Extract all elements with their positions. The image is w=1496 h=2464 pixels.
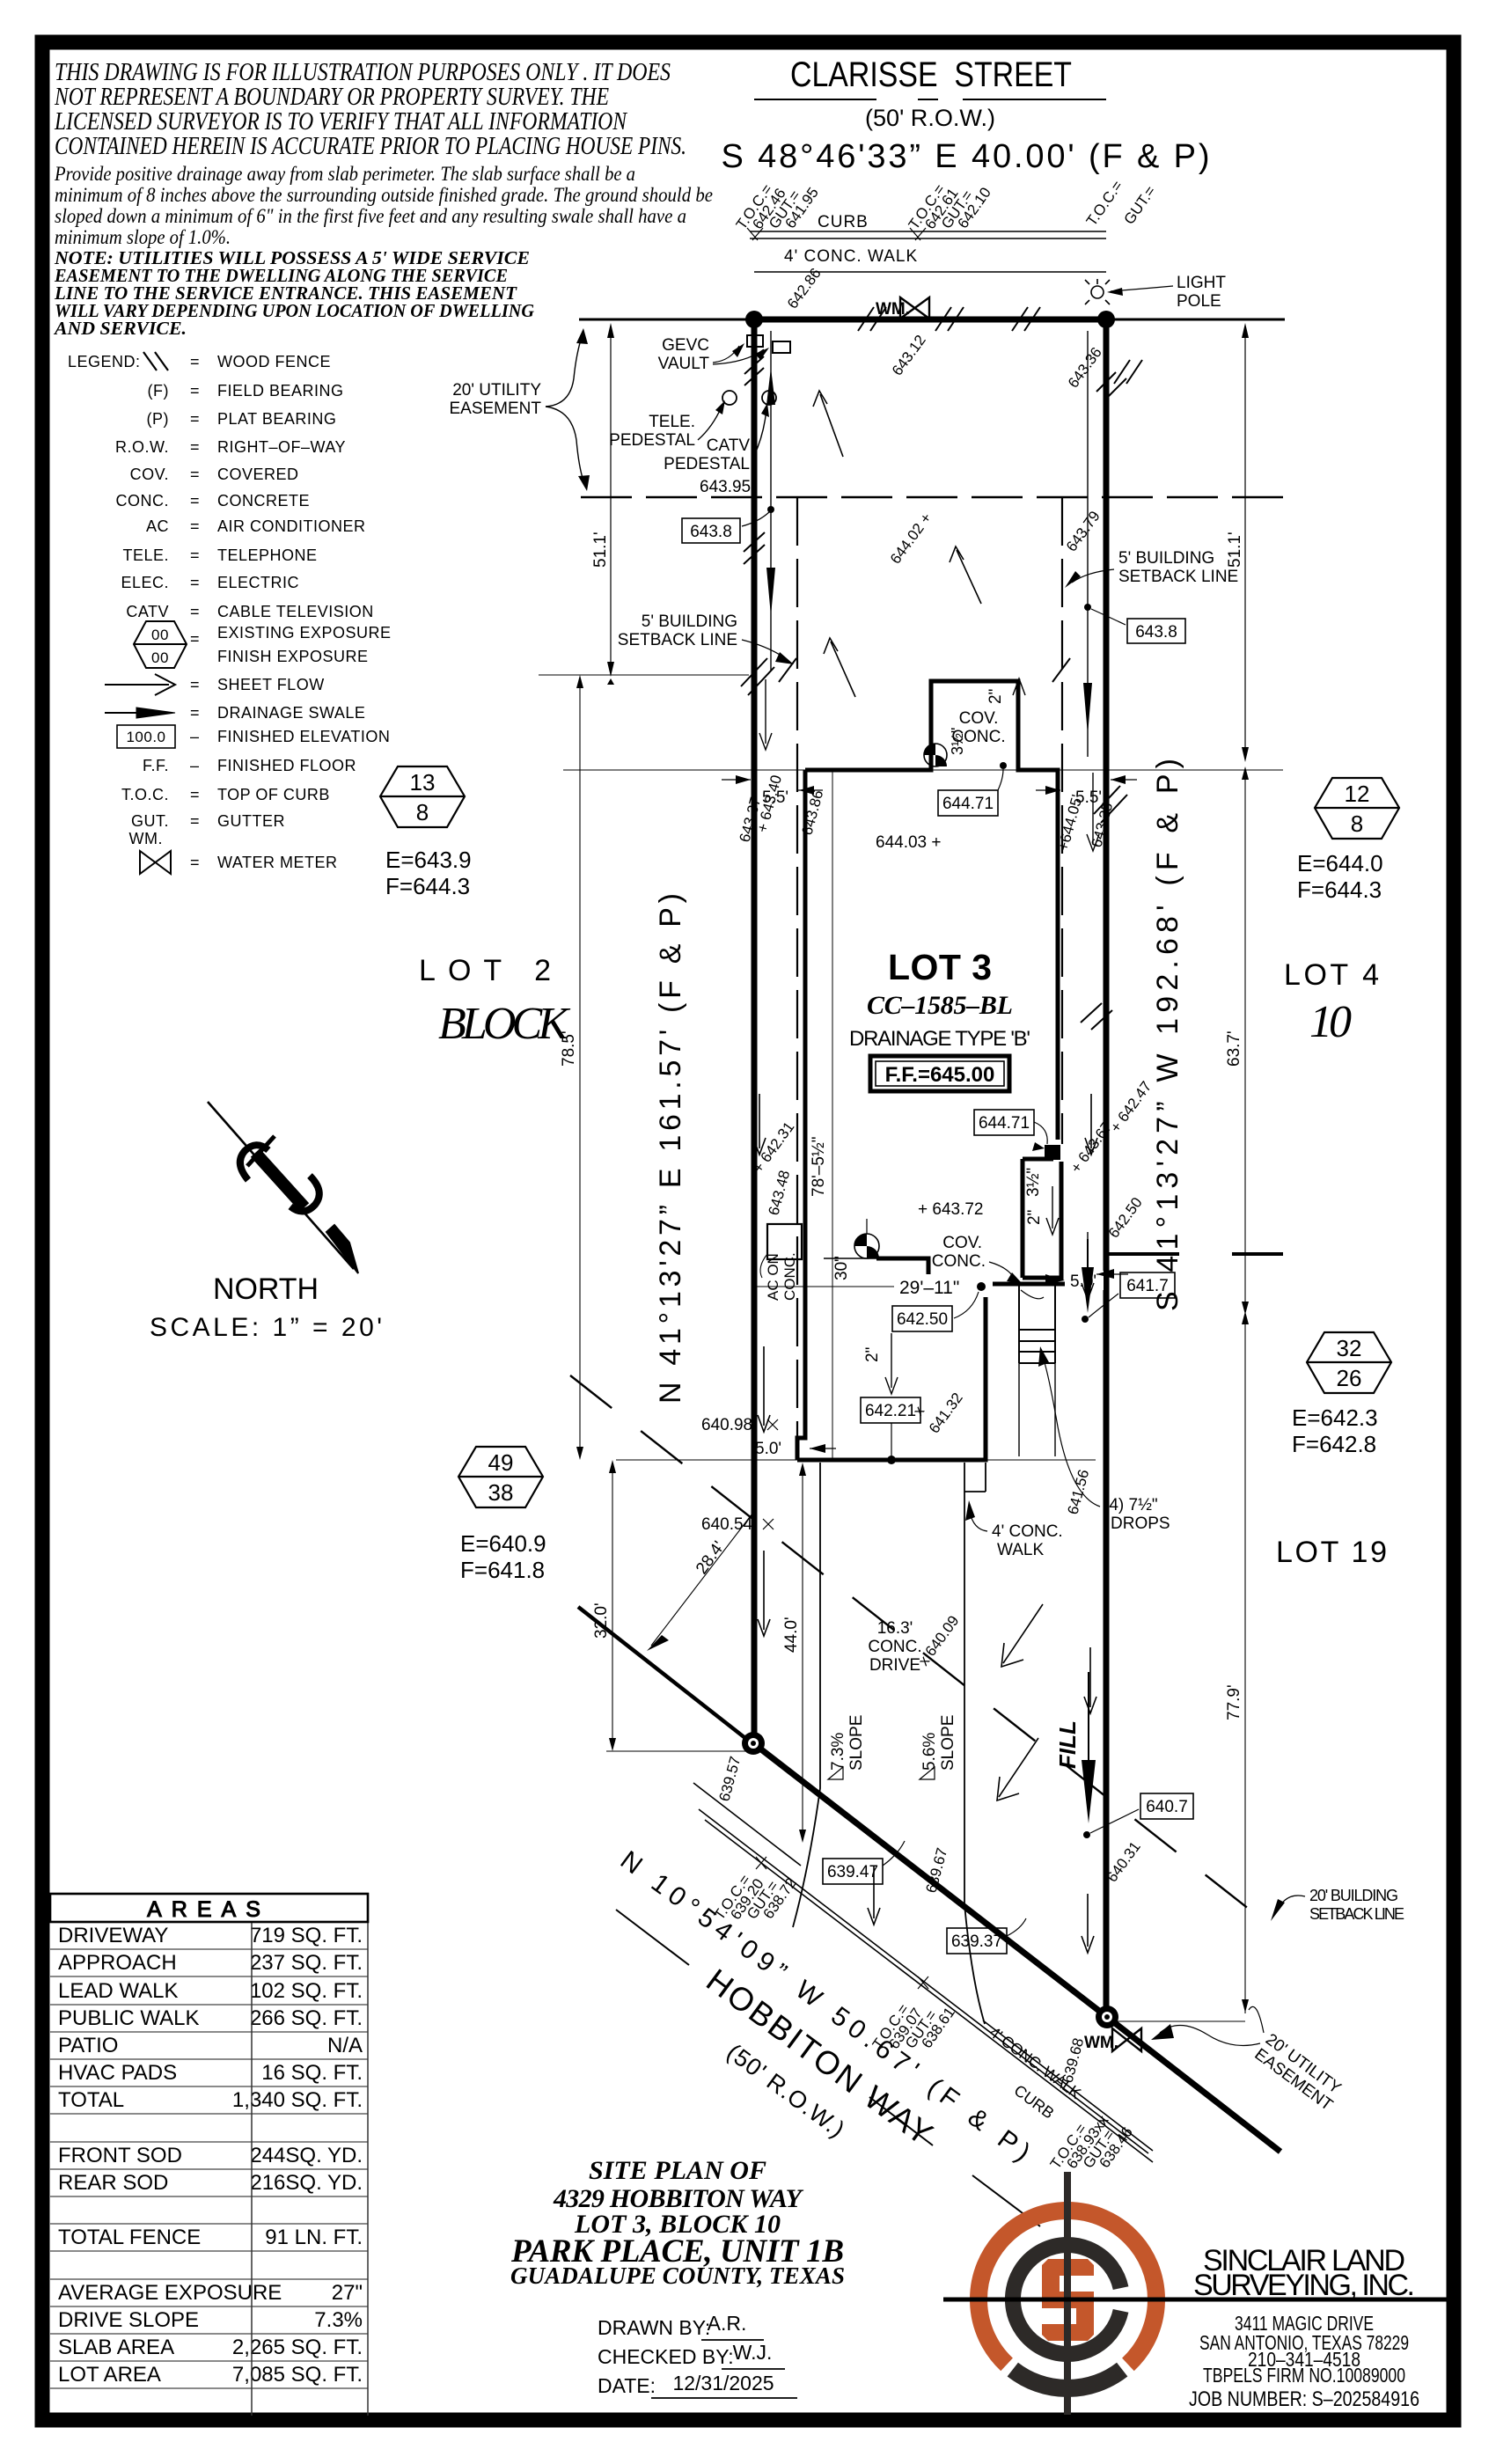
svg-text:PUBLIC WALK: PUBLIC WALK [58,2006,200,2030]
svg-text:(F): (F) [148,382,169,400]
svg-text:78'–5½": 78'–5½" [810,1137,828,1198]
svg-text:00: 00 [151,627,169,643]
svg-text:91 LN. FT.: 91 LN. FT. [265,2226,363,2249]
svg-text:CONC.: CONC. [116,492,170,510]
svg-text:8: 8 [416,799,429,825]
svg-text:HVAC PADS: HVAC PADS [58,2061,177,2085]
svg-text:EASEMENT: EASEMENT [449,400,541,418]
svg-text:DRAWN BY:: DRAWN BY: [598,2316,710,2339]
svg-text:BLOCK: BLOCK [438,999,570,1049]
svg-text:640.98: 640.98 [701,1416,752,1434]
svg-text:S 41°13'27” W 192.68' (F & P): S 41°13'27” W 192.68' (F & P) [1151,759,1184,1311]
svg-text:R.O.W.: R.O.W. [115,438,169,456]
svg-text:CONC.: CONC. [868,1638,921,1656]
svg-text:639.47: 639.47 [827,1863,878,1881]
svg-text:T.O.C.: T.O.C. [121,786,169,803]
svg-text:13: 13 [410,769,436,796]
svg-text:DRIVE: DRIVE [869,1656,920,1675]
svg-text:TOP OF CURB: TOP OF CURB [217,786,330,803]
svg-text:CHECKED BY:: CHECKED BY: [598,2345,734,2368]
svg-text:7.3%: 7.3% [314,2308,363,2332]
svg-text:(P): (P) [147,410,170,428]
svg-text:E=640.9: E=640.9 [460,1530,546,1557]
svg-text:F.F.: F.F. [143,757,169,774]
svg-text:3½": 3½" [949,728,966,755]
svg-text:642.50: 642.50 [897,1310,948,1329]
svg-text:DRIVEWAY: DRIVEWAY [58,1924,168,1947]
svg-text:644.71: 644.71 [979,1114,1030,1133]
svg-text:F=641.8: F=641.8 [460,1557,545,1583]
svg-text:5' BUILDING: 5' BUILDING [642,612,737,631]
svg-text:CONTAINED HEREIN IS ACCURATE P: CONTAINED HEREIN IS ACCURATE PRIOR TO PL… [55,132,686,160]
svg-text:CLARISSE STREET: CLARISSE STREET [790,55,1072,94]
svg-text:(50' R.O.W.): (50' R.O.W.) [865,105,995,131]
svg-text:SLAB AREA: SLAB AREA [58,2336,174,2359]
svg-text:640.7: 640.7 [1146,1798,1188,1816]
svg-text:7.3%: 7.3% [829,1733,847,1771]
svg-text:16.3': 16.3' [877,1619,913,1638]
svg-text:sloped down a minimum of 6" in: sloped down a minimum of 6" in the first… [55,205,686,227]
svg-text:AREAS: AREAS [147,1897,270,1922]
svg-text:WATER METER: WATER METER [217,854,338,871]
svg-text:COVERED: COVERED [217,466,299,483]
svg-text:644.71: 644.71 [942,795,994,813]
svg-text:ELEC.: ELEC. [121,574,169,591]
svg-text:COV.: COV. [959,709,999,728]
svg-text:SITE PLAN OF: SITE PLAN OF [589,2156,766,2185]
svg-text:=: = [190,630,200,648]
svg-text:49: 49 [488,1449,514,1476]
svg-text:644.03 +: 644.03 + [876,833,942,852]
svg-text:GUADALUPE COUNTY, TEXAS: GUADALUPE COUNTY, TEXAS [510,2262,845,2289]
svg-text:TBPELS FIRM NO.10089000: TBPELS FIRM NO.10089000 [1203,2364,1405,2387]
svg-text:5.6%: 5.6% [920,1733,939,1771]
svg-text:WM.: WM. [129,830,163,847]
svg-text:PEDESTAL: PEDESTAL [609,431,695,450]
svg-text:LOT 4: LOT 4 [1284,958,1379,992]
svg-text:CONCRETE: CONCRETE [217,492,310,510]
svg-text:EXISTING EXPOSURE: EXISTING EXPOSURE [217,624,392,642]
svg-text:12/31/2025: 12/31/2025 [672,2372,774,2394]
svg-text:PATIO: PATIO [58,2034,118,2057]
svg-text:–: – [190,757,200,774]
svg-text:77.9': 77.9' [1225,1684,1243,1720]
svg-text:=: = [190,676,200,693]
svg-text:APPROACH: APPROACH [58,1951,177,1975]
svg-text:Provide positive drainage away: Provide positive drainage away from slab… [54,163,635,185]
svg-text:643.8: 643.8 [690,523,732,541]
svg-text:2": 2" [863,1347,882,1362]
svg-text:DRAINAGE TYPE 'B': DRAINAGE TYPE 'B' [849,1027,1030,1051]
svg-text:SCALE: 1” = 20': SCALE: 1” = 20' [150,1313,382,1342]
svg-text:CABLE TELEVISION: CABLE TELEVISION [217,603,374,620]
svg-text:SETBACK LINE: SETBACK LINE [618,631,737,649]
svg-text:VAULT: VAULT [658,355,710,373]
svg-text:4' CONC.: 4' CONC. [992,1522,1063,1541]
svg-text:=: = [190,812,200,830]
svg-text:8: 8 [1351,810,1363,837]
svg-text:POLE: POLE [1177,292,1221,311]
svg-text:00: 00 [151,649,169,666]
svg-text:FINISHED FLOOR: FINISHED FLOOR [217,757,356,774]
svg-text:5' BUILDING: 5' BUILDING [1118,549,1214,568]
svg-text:NORTH: NORTH [213,1272,319,1306]
svg-text:TELE.: TELE. [649,413,695,431]
svg-text:SURVEYING, INC.: SURVEYING, INC. [1193,2269,1415,2302]
svg-text:=: = [190,466,200,483]
svg-text:LOT 19: LOT 19 [1276,1536,1387,1569]
svg-text:=: = [190,574,200,591]
svg-text:LIGHT: LIGHT [1177,274,1226,292]
svg-text:FINISH EXPOSURE: FINISH EXPOSURE [217,648,369,665]
svg-text:LEAD WALK: LEAD WALK [58,1979,179,2003]
svg-text:LEGEND:: LEGEND: [68,353,141,370]
svg-text:16 SQ. FT.: 16 SQ. FT. [261,2061,363,2085]
svg-text:27": 27" [332,2281,363,2305]
svg-text:643.95: 643.95 [700,478,751,496]
svg-text:=: = [190,546,200,564]
svg-text:44.0': 44.0' [782,1617,801,1653]
svg-text:CONC.: CONC. [932,1252,986,1271]
svg-text:216SQ. YD.: 216SQ. YD. [250,2171,363,2195]
svg-text:GUTTER: GUTTER [217,812,285,830]
svg-text:3½": 3½" [1024,1168,1043,1197]
svg-text:SETBACK LINE: SETBACK LINE [1118,568,1238,586]
svg-text:(4) 7½": (4) 7½" [1104,1496,1158,1514]
svg-text:F=644.3: F=644.3 [385,873,470,899]
svg-text:=: = [190,438,200,456]
svg-text:29'–11": 29'–11" [899,1278,959,1298]
svg-text:REAR SOD: REAR SOD [58,2171,168,2195]
svg-text:=: = [190,492,200,510]
svg-text:FINISHED ELEVATION: FINISHED ELEVATION [217,728,390,745]
svg-text:640.54: 640.54 [701,1515,753,1534]
svg-text:32: 32 [1337,1335,1362,1361]
svg-text:20' BUILDING: 20' BUILDING [1309,1887,1398,1904]
svg-text:FILL: FILL [1054,1720,1081,1769]
svg-text:WOOD FENCE: WOOD FENCE [217,353,331,370]
svg-text:AND SERVICE.: AND SERVICE. [53,318,187,339]
svg-text:2": 2" [986,689,1005,704]
svg-text:E=644.0: E=644.0 [1297,850,1383,876]
svg-text:719 SQ. FT.: 719 SQ. FT. [250,1924,363,1947]
svg-text:26: 26 [1337,1365,1362,1391]
svg-text:SETBACK LINE: SETBACK LINE [1309,1905,1404,1923]
svg-text:TELE.: TELE. [122,546,169,564]
svg-text:A.R.: A.R. [708,2312,747,2335]
svg-text:PEDESTAL: PEDESTAL [664,455,750,473]
svg-text:237 SQ. FT.: 237 SQ. FT. [250,1951,363,1975]
svg-text:LOT AREA: LOT AREA [58,2363,161,2387]
svg-text:–: – [190,728,200,745]
svg-text:10: 10 [1309,997,1352,1047]
svg-text:TOTAL: TOTAL [58,2088,124,2112]
svg-text:minimum slope of 1.0%.: minimum slope of 1.0%. [55,226,231,248]
svg-text:5.0': 5.0' [755,1440,781,1458]
svg-text:=: = [190,517,200,535]
svg-text:100.0: 100.0 [126,729,165,745]
svg-text:643.8: 643.8 [1135,623,1177,642]
svg-text:102 SQ. FT.: 102 SQ. FT. [250,1979,363,2003]
svg-text:=: = [190,854,200,871]
svg-text:GEVC: GEVC [662,336,709,355]
svg-text:=: = [190,410,200,428]
svg-text:SLOPE: SLOPE [847,1715,866,1771]
svg-text:51.1': 51.1' [591,532,610,568]
svg-text:639.37: 639.37 [951,1932,1002,1951]
svg-text:F=644.3: F=644.3 [1297,876,1382,903]
svg-text:20' UTILITY: 20' UTILITY [452,381,541,400]
svg-text:S 48°46'33” E 40.00' (F & P): S 48°46'33” E 40.00' (F & P) [722,138,1210,175]
svg-text:244SQ. YD.: 244SQ. YD. [250,2144,363,2167]
svg-text:CURB: CURB [818,213,869,231]
svg-text:TELEPHONE: TELEPHONE [217,546,318,564]
svg-text:F.F.=645.00: F.F.=645.00 [885,1063,995,1087]
svg-text:GUT.: GUT. [131,812,169,830]
svg-text:78.5': 78.5' [560,1030,578,1067]
svg-text:DATE:: DATE: [598,2374,656,2397]
svg-text:51.1': 51.1' [1226,532,1244,568]
svg-text:TOTAL FENCE: TOTAL FENCE [58,2226,201,2249]
svg-text:W.J.: W.J. [733,2341,773,2364]
svg-text:DRIVE SLOPE: DRIVE SLOPE [58,2308,199,2332]
svg-text:JOB NUMBER: S–202584916: JOB NUMBER: S–202584916 [1189,2387,1419,2411]
svg-text:DRAINAGE SWALE: DRAINAGE SWALE [217,704,365,722]
svg-text:FRONT SOD: FRONT SOD [58,2144,182,2167]
svg-text:FIELD BEARING: FIELD BEARING [217,382,344,400]
svg-text:COV.: COV. [130,466,169,483]
svg-text:minimum of 8 inches above the: minimum of 8 inches above the surroundin… [55,184,713,206]
svg-text:AVERAGE EXPOSURE: AVERAGE EXPOSURE [58,2281,282,2305]
svg-text:12: 12 [1345,781,1370,807]
svg-text:266 SQ. FT.: 266 SQ. FT. [250,2006,363,2030]
svg-text:=: = [190,704,200,722]
svg-text:=: = [190,382,200,400]
svg-text:E=642.3: E=642.3 [1292,1404,1378,1431]
svg-text:F=642.8: F=642.8 [1292,1431,1376,1457]
svg-text:LOT 3: LOT 3 [888,947,992,987]
svg-text:AC ON: AC ON [765,1253,781,1301]
svg-text:ELECTRIC: ELECTRIC [217,574,299,591]
svg-text:63.7': 63.7' [1225,1030,1243,1067]
svg-text:2": 2" [1025,1210,1044,1225]
svg-text:SHEET FLOW: SHEET FLOW [217,676,325,693]
svg-text:WALK: WALK [997,1541,1044,1559]
svg-text:=: = [190,786,200,803]
svg-text:N/A: N/A [327,2034,363,2057]
svg-text:=: = [190,353,200,370]
svg-text:CATV: CATV [126,603,169,620]
svg-text:CONC.: CONC. [781,1252,798,1301]
svg-text:642.21: 642.21 [865,1402,916,1420]
svg-text:=: = [190,603,200,620]
svg-text:AC: AC [146,517,169,535]
svg-text:CATV: CATV [707,436,751,455]
svg-text:PLAT BEARING: PLAT BEARING [217,410,336,428]
svg-text:SLOPE: SLOPE [939,1715,957,1771]
svg-text:AIR CONDITIONER: AIR CONDITIONER [217,517,366,535]
svg-text:RIGHT–OF–WAY: RIGHT–OF–WAY [217,438,346,456]
svg-text:+ 643.72: + 643.72 [918,1200,984,1219]
svg-text:DROPS: DROPS [1111,1514,1170,1533]
svg-text:E=643.9: E=643.9 [385,847,472,873]
svg-text:COV.: COV. [942,1234,982,1252]
svg-text:4' CONC. WALK: 4' CONC. WALK [784,247,918,266]
svg-text:30": 30" [832,1256,851,1280]
svg-text:CC–1585–BL: CC–1585–BL [867,991,1013,1020]
svg-text:38: 38 [488,1479,514,1506]
